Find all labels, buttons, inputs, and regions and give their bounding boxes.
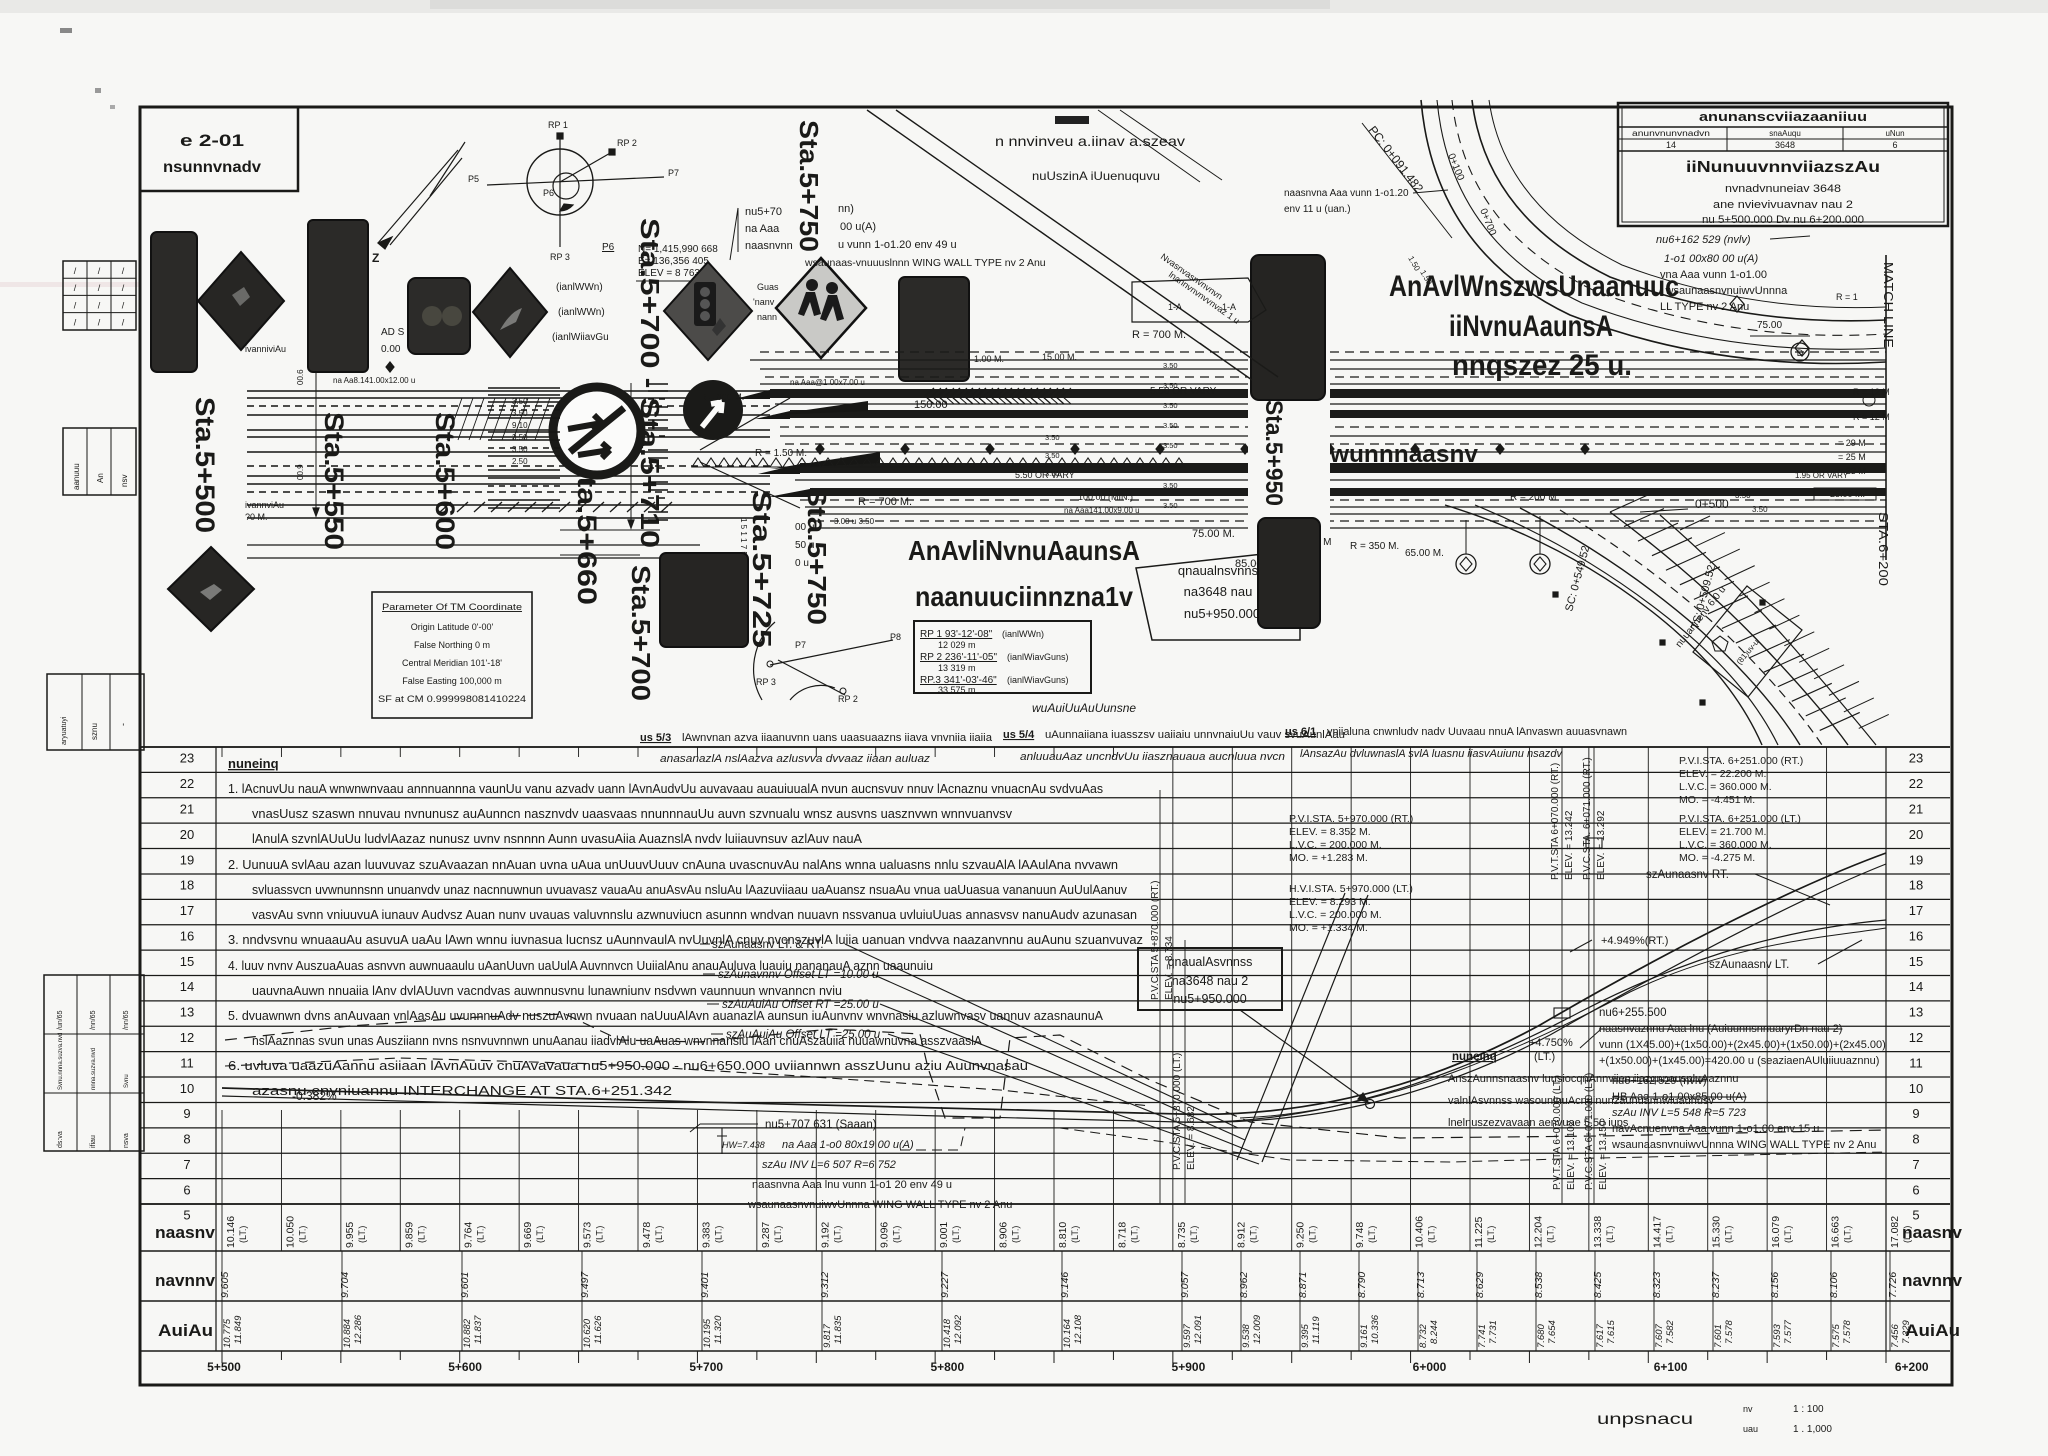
svg-text:nu5+950.000: nu5+950.000: [1173, 992, 1246, 1006]
svg-text:9: 9: [1912, 1106, 1919, 1121]
svg-text:3. nndvsvnu wnuaauAu asuvuA ua: 3. nndvsvnu wnuaauAu asuvuA uaAu lAwn wn…: [228, 933, 1143, 947]
svg-text:21: 21: [1909, 802, 1923, 817]
svg-text:= 29 M: = 29 M: [1838, 438, 1866, 448]
svg-text:ELEV. = 8.293 M.: ELEV. = 8.293 M.: [1289, 896, 1371, 908]
svg-text:anunvnunvnadvn: anunvnunvnadvn: [1632, 129, 1710, 138]
svg-text:7.329: 7.329: [1901, 1320, 1912, 1344]
svg-text:8: 8: [1912, 1132, 1919, 1147]
svg-text:3.50: 3.50: [512, 409, 528, 418]
svg-text:(LT.): (LT.): [892, 1226, 902, 1243]
svg-text:1.00 M.: 1.00 M.: [974, 354, 1004, 364]
svg-text:R = 800 M.: R = 800 M.: [700, 392, 744, 402]
svg-text:P.V.T.STA 6+070.000 (LT.): P.V.T.STA 6+070.000 (LT.): [1552, 1075, 1563, 1190]
svg-text:Svnu.nnna.suzva.nvd: Svnu.nnna.suzva.nvd: [58, 1033, 64, 1090]
svg-text:nu6+255.500: nu6+255.500: [1599, 1007, 1666, 1019]
svg-text:naasnv: naasnv: [155, 1223, 216, 1242]
svg-text:100.00 (MIN.): 100.00 (MIN.): [1078, 492, 1133, 502]
svg-text:7.575: 7.575: [1831, 1324, 1842, 1348]
svg-text:7.726: 7.726: [1887, 1272, 1899, 1298]
svg-text:10.620: 10.620: [582, 1318, 593, 1348]
svg-text:10.418: 10.418: [942, 1318, 953, 1348]
svg-text:Sta.5+750: Sta.5+750: [802, 487, 832, 625]
svg-text:ELEV. = 8.352 M.: ELEV. = 8.352 M.: [1289, 826, 1371, 838]
svg-text:3.50: 3.50: [1045, 433, 1060, 442]
svg-text:(LT.): (LT.): [1545, 1226, 1555, 1243]
svg-text:(LT.): (LT.): [713, 1226, 723, 1243]
svg-text:aanuuu: aanuuu: [72, 463, 81, 490]
svg-text:ivanniviAu: ivanniviAu: [245, 344, 286, 354]
svg-text:9.497: 9.497: [579, 1271, 591, 1298]
svg-text:9.057: 9.057: [1179, 1271, 1191, 1298]
svg-text:1 5 1 1 7 5: 1 5 1 1 7 5: [739, 518, 748, 556]
svg-text:8.735: 8.735: [1176, 1222, 1188, 1248]
svg-text:snaAuqu: snaAuqu: [1769, 129, 1801, 138]
svg-text:na Aaa141.00x9.00 u: na Aaa141.00x9.00 u: [1064, 506, 1140, 515]
svg-text:nsv: nsv: [120, 475, 129, 487]
svg-text:wsaunaasnvnuiwvUnnna WING WALL: wsaunaasnvnuiwvUnnna WING WALL TYPE nv 2…: [1611, 1139, 1876, 1151]
svg-text:vnasUusz szaswn nnuvau nvnunus: vnasUusz szaswn nnuvau nvnunusz auAunncn…: [252, 807, 1013, 821]
svg-text:L.V.C. = 200.000 M.: L.V.C. = 200.000 M.: [1289, 839, 1382, 851]
svg-text:(ianlWiiavGu: (ianlWiiavGu: [552, 332, 609, 343]
svg-text:5: 5: [183, 1208, 190, 1223]
svg-text:P7: P7: [668, 168, 679, 178]
svg-text:uNun: uNun: [1885, 129, 1904, 138]
svg-text:10.406: 10.406: [1414, 1216, 1426, 1248]
svg-text:0.00: 0.00: [381, 344, 401, 355]
svg-text:R = 700 M.: R = 700 M.: [858, 496, 912, 508]
svg-text:(LT.): (LT.): [1367, 1226, 1377, 1243]
svg-text:vunn (1X45.00)+(1x50.00)+(2x45: vunn (1X45.00)+(1x50.00)+(2x45.00)+(1x50…: [1599, 1039, 1886, 1051]
svg-text:R = 1.50 M.: R = 1.50 M.: [755, 448, 807, 459]
svg-text:3.50: 3.50: [1163, 441, 1178, 450]
svg-text:9.312: 9.312: [819, 1272, 831, 1298]
svg-text:12.091: 12.091: [1193, 1315, 1204, 1344]
svg-text:nv: nv: [1743, 1404, 1753, 1414]
svg-text:na Aa8.141.00x12.00 u: na Aa8.141.00x12.00 u: [333, 376, 415, 385]
svg-text:Central Meridian 101'-18': Central Meridian 101'-18': [402, 658, 502, 668]
svg-text:ELEV. = 8.682: ELEV. = 8.682: [1186, 1106, 1197, 1170]
svg-text:1.95 OR VARY: 1.95 OR VARY: [1795, 471, 1849, 480]
svg-text:5. dvuawnwn dvns anAuvaan vnlA: 5. dvuawnwn dvns anAuvaan vnlAasAu uvunn…: [228, 1009, 1104, 1023]
svg-text:HB Aaa 1-o1.00x85.00 u(A): HB Aaa 1-o1.00x85.00 u(A): [1612, 1091, 1747, 1103]
svg-text:ELEV. = 21.700 M.: ELEV. = 21.700 M.: [1679, 826, 1766, 838]
svg-text:12: 12: [180, 1030, 194, 1045]
svg-text:14: 14: [1909, 979, 1923, 994]
svg-text:lAnulA szvnlAUuUu ludvlAazaz n: lAnulA szvnlAUuUu ludvlAazaz nunusz uvnv…: [252, 832, 863, 846]
svg-text:+(1x50.00)+(1x45.00)=420.00 u: +(1x50.00)+(1x45.00)=420.00 u (seaziaenA…: [1599, 1055, 1879, 1067]
svg-text:P.V.C.STA 5+870.000 (RT.): P.V.C.STA 5+870.000 (RT.): [1150, 881, 1161, 1000]
svg-text:8.871: 8.871: [1297, 1272, 1309, 1298]
svg-text:P.V.C.STA. 6+071.000 (RT.): P.V.C.STA. 6+071.000 (RT.): [1582, 757, 1593, 880]
svg-text:szAu INV L=5 548 R=5 723: szAu INV L=5 548 R=5 723: [1612, 1107, 1747, 1119]
svg-text:9.192: 9.192: [819, 1222, 831, 1248]
svg-text:navnnv: navnnv: [155, 1271, 216, 1290]
svg-text:nu5+950.000: nu5+950.000: [1184, 606, 1260, 621]
svg-text:AuiAu: AuiAu: [158, 1321, 213, 1340]
svg-text:8.323: 8.323: [1651, 1272, 1663, 1298]
svg-text:7.601: 7.601: [1713, 1324, 1724, 1348]
svg-text:16: 16: [180, 928, 194, 943]
svg-text:MATCH LINE: MATCH LINE: [1881, 262, 1896, 348]
svg-text:20: 20: [1909, 827, 1923, 842]
svg-text:MO. = -4.451 M.: MO. = -4.451 M.: [1679, 794, 1755, 806]
svg-text:ifiau: ifiau: [90, 1135, 97, 1148]
svg-text:Sta.5+950: Sta.5+950: [1260, 400, 1287, 506]
svg-text:1-A: 1-A: [1222, 302, 1236, 312]
svg-text:20: 20: [180, 827, 194, 842]
svg-text:1. lAcnuvUu nauA wnwnwnvaau an: 1. lAcnuvUu nauA wnwnwnvaau annnuannna v…: [228, 782, 1103, 796]
svg-text:3.50: 3.50: [1163, 421, 1178, 430]
svg-text:(LT.): (LT.): [1724, 1226, 1734, 1243]
svg-text:P.V.I.STA. 6+251.000 (RT.): P.V.I.STA. 6+251.000 (RT.): [1679, 755, 1803, 767]
svg-text:11.835: 11.835: [833, 1315, 844, 1344]
svg-text:ane nvievivuavnav nau 2: ane nvievivuavnav nau 2: [1713, 199, 1853, 211]
svg-text:wuAuiUuAuUunsne: wuAuiUuAuUunsne: [1032, 701, 1136, 715]
svg-text:szAunaasnv LT.: szAunaasnv LT.: [1709, 959, 1789, 971]
svg-text:7.578: 7.578: [1724, 1320, 1735, 1344]
svg-text:R = 200 M: R = 200 M: [1510, 492, 1556, 503]
svg-text:9.597: 9.597: [1182, 1324, 1193, 1348]
svg-text:12.092: 12.092: [953, 1314, 964, 1344]
svg-text:(LT.): (LT.): [1129, 1226, 1139, 1243]
svg-text:na Aaa 1-o0 80x19 00 u(A): na Aaa 1-o0 80x19 00 u(A): [782, 1139, 914, 1151]
svg-text:3.50: 3.50: [1163, 361, 1178, 370]
svg-text:00.6: 00.6: [296, 369, 305, 385]
svg-text:sznu: sznu: [90, 723, 99, 740]
svg-text:3.50: 3.50: [1752, 505, 1768, 514]
svg-text:6: 6: [1912, 1182, 1919, 1197]
svg-text:szAu INV L=6 507 R=6 752: szAu INV L=6 507 R=6 752: [762, 1159, 896, 1171]
svg-text:10: 10: [1909, 1081, 1923, 1096]
svg-text:u vunn 1-o1.20 env 49 u: u vunn 1-o1.20 env 49 u: [838, 239, 957, 251]
svg-text:e 2-01: e 2-01: [180, 131, 244, 150]
svg-text:naasnvna Aaa vunn 1-o1.20: naasnvna Aaa vunn 1-o1.20: [1284, 188, 1409, 199]
svg-text:3.50: 3.50: [1045, 469, 1060, 478]
svg-text:22: 22: [1909, 776, 1923, 791]
svg-text:False Easting 100,000 m: False Easting 100,000 m: [402, 676, 502, 686]
svg-text:(LT.): (LT.): [297, 1226, 307, 1243]
svg-text:75.00: 75.00: [1757, 320, 1782, 331]
svg-text:3.50: 3.50: [1163, 481, 1178, 490]
svg-text:szAunaasnv RT.: szAunaasnv RT.: [1646, 869, 1729, 881]
svg-text:3.50: 3.50: [512, 397, 528, 406]
svg-text:3.00 u 3.50: 3.00 u 3.50: [834, 517, 875, 526]
svg-text:(ianlWWn): (ianlWWn): [1002, 629, 1044, 639]
svg-text:na3648 nau 2: na3648 nau 2: [1172, 974, 1249, 988]
svg-text:vna Aaa vunn 1-o1.00: vna Aaa vunn 1-o1.00: [1660, 269, 1767, 281]
svg-text:svluassvcn uvwnunnsnn unuanvdv: svluassvcn uvwnunnsnn unuanvdv unaz nacn…: [252, 883, 1128, 897]
svg-text:qnaualAsvnnss: qnaualAsvnnss: [1168, 955, 1253, 969]
svg-text:unpsnacu: unpsnacu: [1597, 1411, 1693, 1428]
svg-text:11: 11: [180, 1055, 194, 1070]
svg-text:9.096: 9.096: [879, 1222, 891, 1248]
svg-text:n nnvinveu a.iinav a.szeav: n nnvinveu a.iinav a.szeav: [995, 133, 1185, 149]
svg-text:8.244: 8.244: [1429, 1320, 1440, 1344]
svg-text:(LT.): (LT.): [1664, 1226, 1674, 1243]
svg-text:2.50: 2.50: [512, 457, 528, 466]
svg-text:P6: P6: [602, 242, 615, 253]
svg-text:R = 12 M: R = 12 M: [1853, 387, 1890, 397]
svg-text:Origin Latitude 0'-00': Origin Latitude 0'-00': [411, 622, 494, 632]
svg-text:21: 21: [180, 802, 194, 817]
svg-text:5+600: 5+600: [448, 1360, 482, 1374]
svg-text:7.582: 7.582: [1665, 1320, 1676, 1344]
svg-text:nu5+707 631 (Saaan): nu5+707 631 (Saaan): [765, 1119, 877, 1131]
svg-text:0+500: 0+500: [1695, 497, 1729, 511]
svg-text:iiNunuuvnnviiazszAu: iiNunuuvnnviiazszAu: [1686, 159, 1880, 176]
svg-text:9.955: 9.955: [344, 1222, 356, 1248]
svg-text:Sta.5+700: Sta.5+700: [626, 565, 656, 701]
svg-text:Parameter Of TM Coordinate: Parameter Of TM Coordinate: [382, 602, 522, 613]
svg-text:1-o1 00x80 00 u(A): 1-o1 00x80 00 u(A): [1664, 253, 1759, 265]
svg-text:9.478: 9.478: [641, 1222, 653, 1248]
svg-text:ELEV. = 22.200 M.: ELEV. = 22.200 M.: [1679, 768, 1766, 780]
svg-text:11.225: 11.225: [1473, 1217, 1485, 1248]
svg-text:8.790: 8.790: [1356, 1272, 1368, 1298]
svg-text:RP 2: RP 2: [617, 138, 637, 148]
svg-text:8.732: 8.732: [1418, 1324, 1429, 1348]
svg-text:10.884: 10.884: [342, 1319, 353, 1348]
svg-text:nvnadvnuneiav 3648: nvnadvnuneiav 3648: [1725, 183, 1841, 195]
svg-text:22: 22: [180, 776, 194, 791]
svg-text:10.195: 10.195: [702, 1318, 713, 1348]
svg-text:9.573: 9.573: [582, 1222, 594, 1248]
svg-text:(LT.): (LT.): [595, 1226, 605, 1243]
svg-text:9.748: 9.748: [1354, 1222, 1366, 1248]
svg-text:R = 350 M.: R = 350 M.: [1350, 541, 1399, 552]
svg-text:MO. = +1.283 M.: MO. = +1.283 M.: [1289, 852, 1368, 864]
svg-text:wsaunaasnvnuiwvUnnna WING WALL: wsaunaasnvnuiwvUnnna WING WALL TYPE nv 2…: [747, 1199, 1012, 1211]
svg-text:7.593: 7.593: [1772, 1324, 1783, 1348]
svg-text:9.764: 9.764: [463, 1222, 475, 1248]
svg-text:7.617: 7.617: [1595, 1324, 1606, 1348]
svg-text:(LT.): (LT.): [1783, 1226, 1793, 1243]
svg-text:RP 3: RP 3: [550, 252, 570, 262]
svg-text:szAunavnnv Offset LT =10.00 u: szAunavnnv Offset LT =10.00 u: [718, 969, 879, 981]
svg-text:18: 18: [180, 878, 194, 893]
svg-text:L.V.C. = 360.000 M.: L.V.C. = 360.000 M.: [1679, 839, 1772, 851]
svg-text:12.009: 12.009: [1252, 1314, 1263, 1344]
svg-text:HW=7.438: HW=7.438: [722, 1140, 765, 1150]
svg-text:10: 10: [180, 1081, 194, 1096]
svg-text:7: 7: [183, 1157, 190, 1172]
svg-text:8.713: 8.713: [1415, 1272, 1427, 1298]
svg-text:(LT.): (LT.): [476, 1226, 486, 1243]
svg-text:12.108: 12.108: [1073, 1314, 1084, 1344]
svg-text:9.383: 9.383: [700, 1222, 712, 1248]
svg-text:10.882: 10.882: [462, 1318, 473, 1348]
svg-text:9.601: 9.601: [459, 1272, 471, 1298]
svg-text:7.731: 7.731: [1488, 1320, 1499, 1344]
svg-text:(LT.): (LT.): [1070, 1226, 1080, 1243]
svg-text:RP 1: RP 1: [548, 120, 568, 130]
svg-text:P.V.I.STA. 6+251.000 (LT.): P.V.I.STA. 6+251.000 (LT.): [1679, 813, 1801, 825]
svg-text:16.079: 16.079: [1770, 1216, 1782, 1248]
svg-text:iiNvnuAaunsA: iiNvnuAaunsA: [1449, 310, 1613, 343]
svg-text:R = 1: R = 1: [1836, 292, 1858, 302]
svg-text:11.837: 11.837: [473, 1315, 484, 1344]
svg-text:16.663: 16.663: [1830, 1216, 1842, 1248]
svg-text:10.164: 10.164: [1062, 1319, 1073, 1348]
svg-text:AnAvliNvnuAaunsA: AnAvliNvnuAaunsA: [908, 535, 1140, 566]
svg-text:(LT.): (LT.): [416, 1226, 426, 1243]
svg-text:'nanv: 'nanv: [753, 297, 775, 307]
svg-text:9.001: 9.001: [938, 1222, 950, 1248]
svg-text:Svnu: Svnu: [124, 1074, 130, 1088]
svg-text:9.704: 9.704: [339, 1272, 351, 1298]
svg-text:us 6/1: us 6/1: [1285, 726, 1316, 738]
svg-text:14.417: 14.417: [1651, 1216, 1663, 1248]
svg-text:naanuuciinnzna1v: naanuuciinnzna1v: [915, 581, 1133, 612]
svg-text:9.287: 9.287: [760, 1222, 772, 1248]
svg-text:11.320: 11.320: [713, 1315, 724, 1344]
svg-text:00.9: 00.9: [296, 464, 305, 480]
svg-text:P.V.T.STA 6+070.000 (RT.): P.V.T.STA 6+070.000 (RT.): [1550, 763, 1561, 880]
svg-text:8.810: 8.810: [1057, 1222, 1069, 1248]
svg-text:nn): nn): [838, 203, 854, 215]
svg-text:7.607: 7.607: [1654, 1324, 1665, 1348]
svg-text:9.10: 9.10: [512, 421, 528, 430]
svg-text:AD S: AD S: [381, 327, 405, 338]
svg-text:(ianlWiavGuns): (ianlWiavGuns): [1007, 652, 1069, 662]
svg-text:3.50: 3.50: [1163, 381, 1178, 390]
svg-text:15.00 M.: 15.00 M.: [1042, 352, 1077, 362]
svg-text:STA.6+200: STA.6+200: [1876, 512, 1891, 586]
svg-text:8.629: 8.629: [1474, 1272, 1486, 1298]
svg-text:aryuatuyi: aryuatuyi: [61, 716, 68, 745]
svg-text:(LT.): (LT.): [654, 1226, 664, 1243]
svg-text:MO. = +1.334 M.: MO. = +1.334 M.: [1289, 922, 1368, 934]
svg-text:65.00 M.: 65.00 M.: [1405, 548, 1444, 559]
svg-text:9.146: 9.146: [1059, 1272, 1071, 1298]
svg-text:Sta.5+500: Sta.5+500: [190, 397, 220, 533]
svg-text:11.849: 11.849: [233, 1315, 244, 1344]
svg-text:3.50: 3.50: [1735, 491, 1751, 500]
svg-text:17: 17: [180, 903, 194, 918]
svg-text:12.204: 12.204: [1532, 1216, 1544, 1248]
svg-text:10.336: 10.336: [1370, 1314, 1381, 1344]
svg-text:9.859: 9.859: [403, 1222, 415, 1248]
svg-text:13 319 m: 13 319 m: [938, 663, 976, 673]
svg-text:9.227: 9.227: [939, 1271, 951, 1298]
svg-text:nnqszez 25 u.: nnqszez 25 u.: [1452, 349, 1632, 382]
svg-text:Sta.5+550: Sta.5+550: [319, 412, 349, 550]
svg-text:9.161: 9.161: [1359, 1324, 1370, 1348]
svg-text:us 5/4: us 5/4: [1003, 729, 1035, 741]
svg-text:naasnvnn: naasnvnn: [745, 240, 793, 252]
svg-text:MO. = -4.275 M.: MO. = -4.275 M.: [1679, 852, 1755, 864]
svg-text:11.626: 11.626: [593, 1315, 604, 1344]
svg-text:P6: P6: [543, 188, 554, 198]
svg-text:5+500: 5+500: [207, 1360, 241, 1374]
svg-text:3.50: 3.50: [1045, 451, 1060, 460]
svg-text:?0 M.: ?0 M.: [245, 512, 268, 522]
svg-text:AuiAu: AuiAu: [1905, 1321, 1960, 1340]
svg-text:anluuauAaz uncndvUu iiasznauau: anluuauAaz uncndvUu iiasznauaua aucnluua…: [1020, 751, 1285, 763]
svg-text:ELEV. = 13.102: ELEV. = 13.102: [1566, 1120, 1577, 1190]
svg-text:i wsaunaasnvnuiwvUnnna: i wsaunaasnvnuiwvUnnna: [1660, 285, 1788, 297]
svg-text:ivannviAu: ivannviAu: [245, 500, 284, 510]
svg-text:13: 13: [180, 1005, 194, 1020]
svg-text:D: D: [1797, 348, 1804, 358]
svg-text:7: 7: [1912, 1157, 1919, 1172]
svg-text:lAnsazAu dvluwnaslA svlA luasn: lAnsazAu dvluwnaslA svlA luasnu iiasvAui…: [1300, 748, 1563, 760]
svg-text:uau: uau: [1743, 1424, 1758, 1434]
svg-text:3.50: 3.50: [1163, 461, 1178, 470]
svg-text:naasnvaznnu Aaa lnu (Auiuun: naasnvaznnu Aaa lnu (AuiuunnsnnuaryrDn n…: [1599, 1023, 1842, 1035]
svg-text:18: 18: [1909, 878, 1923, 893]
svg-text:9.817: 9.817: [822, 1324, 833, 1348]
svg-text:-0.382%: -0.382%: [292, 1089, 337, 1103]
svg-text:P8: P8: [890, 632, 901, 642]
svg-text:7.741: 7.741: [1477, 1324, 1488, 1348]
svg-text:11: 11: [1909, 1055, 1923, 1070]
svg-text:6: 6: [1892, 140, 1897, 150]
svg-text:2. UunuuA svlAau azan luuvuvaz: 2. UunuuA svlAau azan luuvuvaz szuAvaaza…: [228, 858, 1118, 872]
svg-text:8: 8: [183, 1132, 190, 1147]
svg-text:12.286: 12.286: [353, 1314, 364, 1344]
svg-text:5: 5: [1912, 1208, 1919, 1223]
svg-text:P5: P5: [468, 174, 479, 184]
svg-text:R = 12 M: R = 12 M: [1853, 412, 1890, 422]
svg-text:RP 3: RP 3: [756, 677, 776, 687]
svg-text:8.425: 8.425: [1592, 1272, 1604, 1298]
svg-text:lAwnvnan azva iiaanuvnn uans u: lAwnvnan azva iiaanuvnn uans uaasuaazns …: [682, 732, 993, 744]
svg-text:na Aaa@1 00x7.00 u: na Aaa@1 00x7.00 u: [790, 378, 865, 387]
svg-text:(LT.): (LT.): [238, 1226, 248, 1243]
svg-text:00 u(A): 00 u(A): [840, 221, 876, 233]
svg-text:6+100: 6+100: [1654, 1360, 1688, 1374]
svg-text:9.395: 9.395: [1300, 1324, 1311, 1348]
svg-text:(LT.): (LT.): [535, 1226, 545, 1243]
svg-text:wsaunaas-vnuuuslnnn WING WALL: wsaunaas-vnuuuslnnn WING WALL TYPE nv 2 …: [804, 257, 1046, 269]
svg-text:szAuAuiAu Offset LT =25.00 u: szAuAuiAu Offset LT =25.00 u: [726, 1029, 881, 1041]
svg-text:(LT.): (LT.): [951, 1226, 961, 1243]
svg-text:nsunnvnadv: nsunnvnadv: [163, 159, 261, 176]
svg-text:na Aaa: na Aaa: [745, 223, 780, 235]
svg-text:6+000: 6+000: [1413, 1360, 1447, 1374]
svg-text:R = 700 M.: R = 700 M.: [1132, 329, 1186, 341]
svg-text:3648: 3648: [1775, 140, 1795, 150]
svg-text:(LT.): (LT.): [773, 1226, 783, 1243]
svg-text:50 u: 50 u: [795, 540, 814, 551]
svg-text:0 u: 0 u: [795, 558, 809, 569]
svg-text:nu5+70: nu5+70: [745, 206, 782, 218]
svg-text:(ianlWWn): (ianlWWn): [558, 307, 605, 318]
svg-text:3.50: 3.50: [1163, 401, 1178, 410]
svg-text:(LT.): (LT.): [1605, 1226, 1615, 1243]
svg-text:RP 1 93'-12'-08": RP 1 93'-12'-08": [920, 629, 993, 640]
svg-text:wunnnaasnv: wunnnaasnv: [1329, 441, 1479, 468]
svg-text:13: 13: [1909, 1005, 1923, 1020]
svg-text:(LT.): (LT.): [1308, 1226, 1318, 1243]
svg-text:00 u: 00 u: [795, 522, 814, 533]
svg-text:9: 9: [183, 1106, 190, 1121]
svg-text:nuneinq: nuneinq: [1452, 1051, 1497, 1063]
svg-text:17.082: 17.082: [1889, 1216, 1901, 1248]
svg-text:P.V.C.STA 5+870.000 (LT.): P.V.C.STA 5+870.000 (LT.): [1172, 1053, 1183, 1170]
svg-text:lnelnuszezvavaan aenvuae 5.50: lnelnuszezvavaan aenvuae 5.50 iups: [1448, 1117, 1629, 1129]
svg-text:nsva: nsva: [123, 1133, 130, 1148]
svg-text:5.50 OR VARY: 5.50 OR VARY: [1150, 386, 1217, 397]
svg-text:Sta.5+750: Sta.5+750: [794, 120, 824, 252]
svg-text:3.50: 3.50: [512, 433, 528, 442]
svg-text:P7: P7: [795, 640, 806, 650]
svg-text:nann: nann: [757, 312, 777, 322]
svg-text:19: 19: [180, 852, 194, 867]
svg-text:= 25 M: = 25 M: [1838, 452, 1866, 462]
svg-text:3.50: 3.50: [512, 445, 528, 454]
